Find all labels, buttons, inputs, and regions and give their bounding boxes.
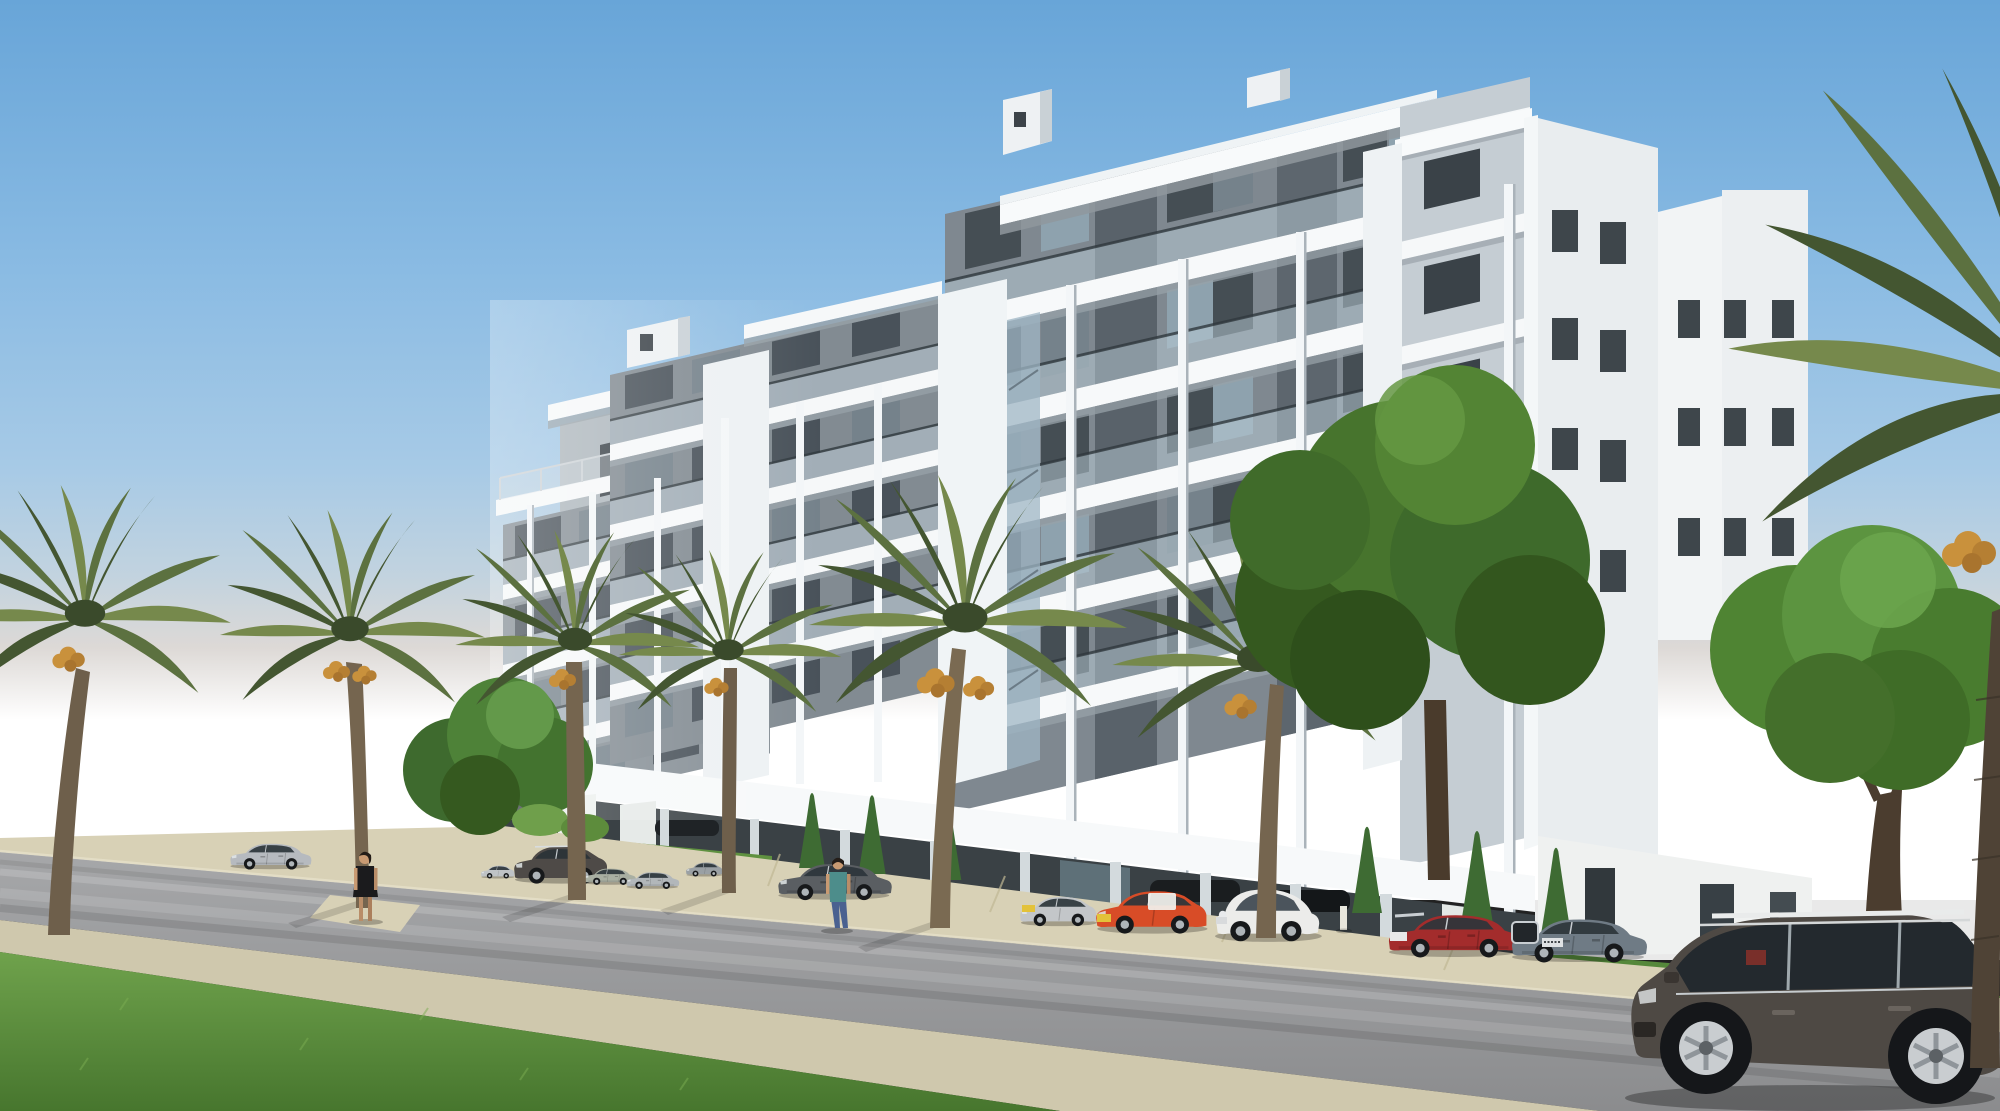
q7-red-interior — [1746, 950, 1766, 965]
clio-door-panel — [1148, 893, 1176, 910]
architectural-render-scene — [0, 0, 2000, 1111]
scene-canvas — [0, 0, 2000, 1111]
clio-yellow-plate — [1097, 914, 1111, 922]
astra-yellow-plate — [1022, 905, 1035, 912]
fiat-plate — [1216, 917, 1227, 924]
